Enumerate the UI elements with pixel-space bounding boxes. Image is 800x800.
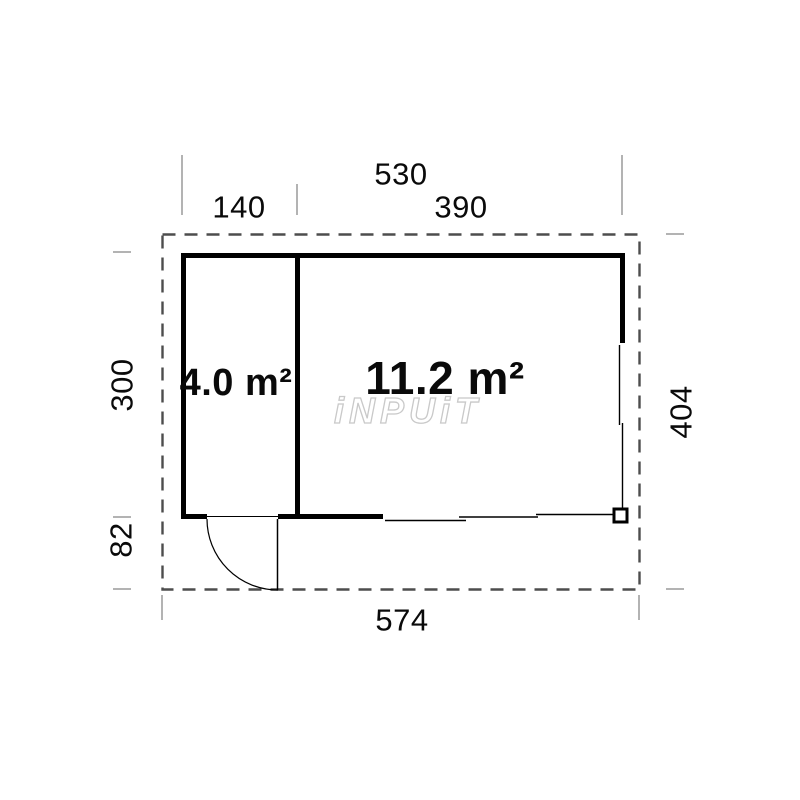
dim-overall-depth: 404 xyxy=(666,385,697,438)
wall-partition xyxy=(295,253,300,519)
floor-plan: 530 140 390 300 82 404 574 4.0 m² 11.2 m… xyxy=(0,0,800,800)
wall-bottom-left-of-door xyxy=(181,514,207,519)
wall-top xyxy=(181,253,625,258)
dim-left-section-width: 140 xyxy=(212,192,265,223)
dim-overall-width: 530 xyxy=(374,159,427,190)
wall-right-upper xyxy=(620,253,625,343)
brand-watermark: iNPUiT xyxy=(334,390,482,432)
dim-building-depth: 300 xyxy=(107,358,138,411)
dim-porch-depth: 82 xyxy=(106,522,137,557)
room-small-area-label: 4.0 m² xyxy=(180,364,293,402)
corner-post xyxy=(614,509,627,522)
dim-right-section-width: 390 xyxy=(434,192,487,223)
dim-overall-length: 574 xyxy=(375,605,428,636)
door-swing-arc xyxy=(207,519,278,590)
wall-bottom-mid xyxy=(278,514,383,519)
